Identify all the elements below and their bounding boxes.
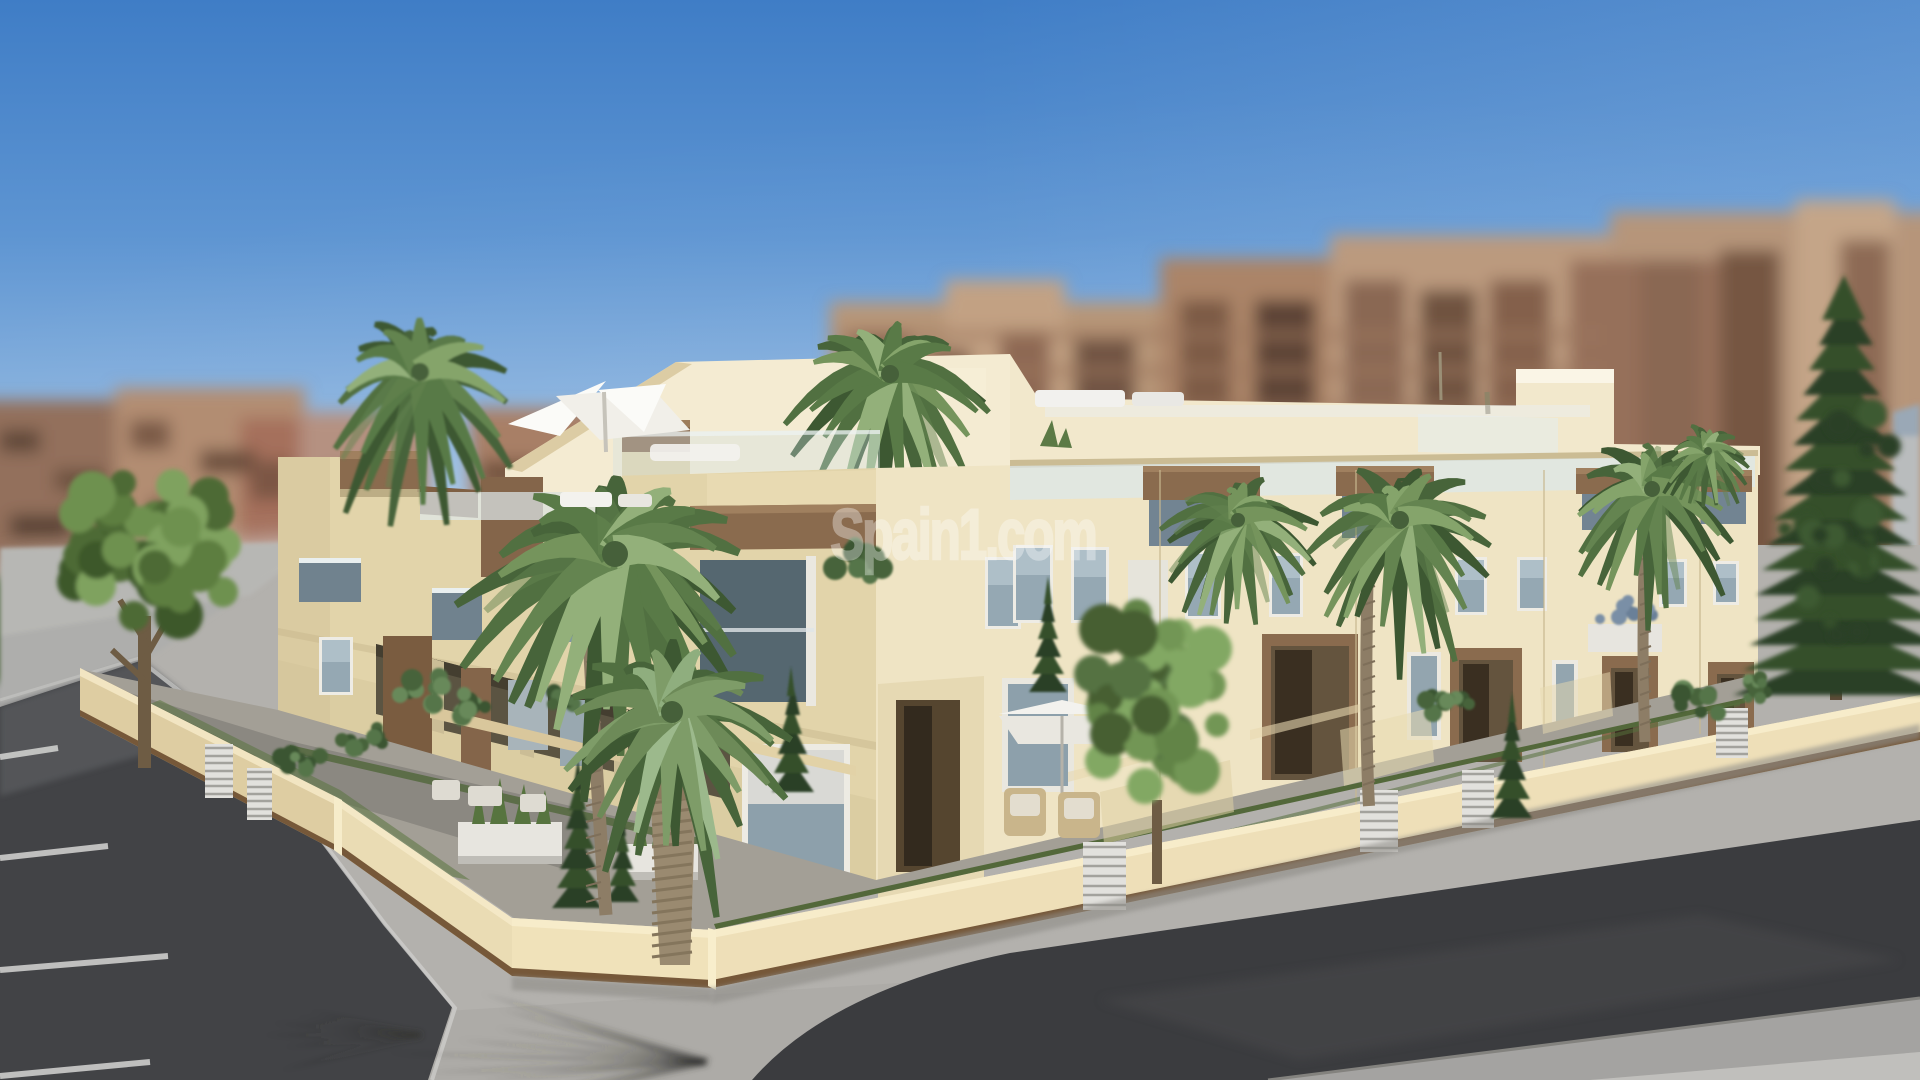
svg-text:Spain1.com: Spain1.com xyxy=(830,496,1095,575)
